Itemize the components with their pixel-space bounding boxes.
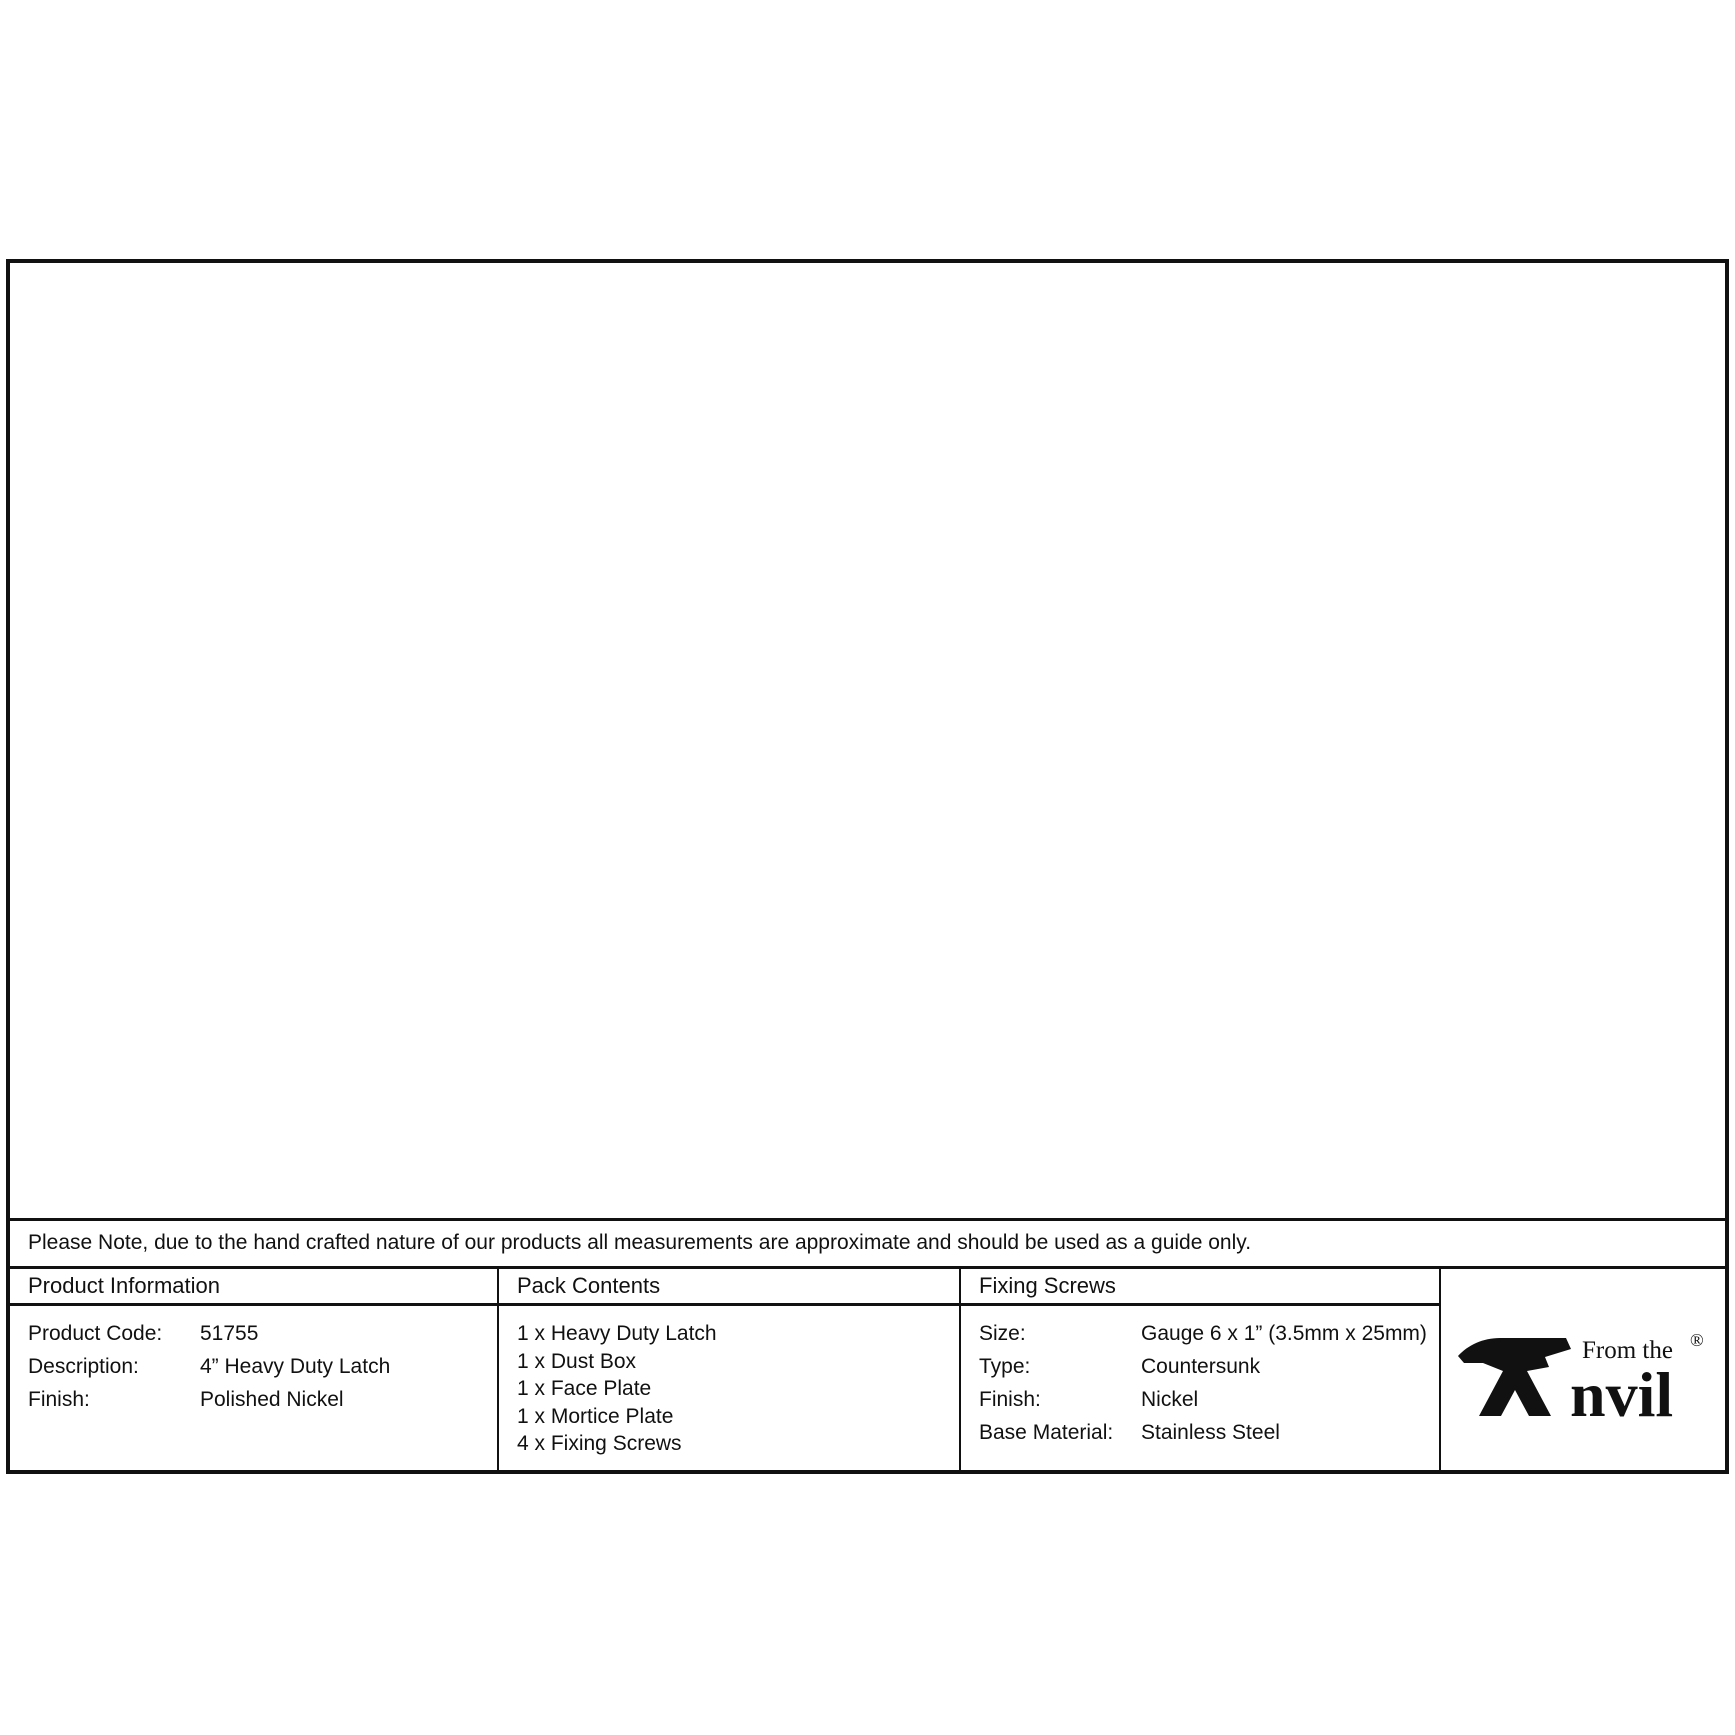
pack-item: 1 x Heavy Duty Latch bbox=[517, 1320, 959, 1348]
pack-item: 1 x Face Plate bbox=[517, 1375, 959, 1403]
field-label: Finish: bbox=[979, 1386, 1141, 1413]
field-value: Polished Nickel bbox=[200, 1386, 344, 1413]
pack-contents-header: Pack Contents bbox=[499, 1269, 959, 1306]
field-value: Nickel bbox=[1141, 1386, 1198, 1413]
fixing-screws-header: Fixing Screws bbox=[961, 1269, 1439, 1306]
anvil-icon bbox=[1458, 1338, 1571, 1416]
spec-sheet-page: { "note": "Please Note, due to the hand … bbox=[0, 0, 1735, 1735]
product-information-column: Product Information Product Code: 51755 … bbox=[10, 1269, 497, 1470]
screw-finish-row: Finish: Nickel bbox=[979, 1386, 1439, 1413]
field-value: Countersunk bbox=[1141, 1353, 1260, 1380]
pack-contents-column: Pack Contents 1 x Heavy Duty Latch 1 x D… bbox=[497, 1269, 959, 1470]
pack-item: 1 x Dust Box bbox=[517, 1348, 959, 1376]
pack-item: 4 x Fixing Screws bbox=[517, 1430, 959, 1458]
pack-item: 1 x Mortice Plate bbox=[517, 1403, 959, 1431]
field-value: 4” Heavy Duty Latch bbox=[200, 1353, 390, 1380]
field-label: Finish: bbox=[28, 1386, 200, 1413]
field-label: Size: bbox=[979, 1320, 1141, 1347]
info-grid: Product Information Product Code: 51755 … bbox=[10, 1266, 1725, 1470]
registered-trademark-icon: ® bbox=[1690, 1330, 1704, 1350]
field-label: Base Material: bbox=[979, 1419, 1141, 1446]
finish-row: Finish: Polished Nickel bbox=[28, 1386, 497, 1413]
measurement-note: Please Note, due to the hand crafted nat… bbox=[10, 1218, 1725, 1266]
sheet-border: Please Note, due to the hand crafted nat… bbox=[6, 259, 1729, 1474]
field-value: Stainless Steel bbox=[1141, 1419, 1280, 1446]
size-row: Size: Gauge 6 x 1” (3.5mm x 25mm) bbox=[979, 1320, 1439, 1347]
spec-table: Please Note, due to the hand crafted nat… bbox=[10, 1218, 1725, 1470]
field-label: Description: bbox=[28, 1353, 200, 1380]
fixing-screws-column: Fixing Screws Size: Gauge 6 x 1” (3.5mm … bbox=[959, 1269, 1439, 1470]
logo-anvil-text: nvil bbox=[1570, 1359, 1673, 1424]
base-material-row: Base Material: Stainless Steel bbox=[979, 1419, 1439, 1446]
brand-logo-cell: From the nvil ® bbox=[1439, 1269, 1725, 1470]
field-label: Type: bbox=[979, 1353, 1141, 1380]
product-information-header: Product Information bbox=[10, 1269, 497, 1306]
field-value: 51755 bbox=[200, 1320, 258, 1347]
field-value: Gauge 6 x 1” (3.5mm x 25mm) bbox=[1141, 1320, 1427, 1347]
product-code-row: Product Code: 51755 bbox=[28, 1320, 497, 1347]
field-label: Product Code: bbox=[28, 1320, 200, 1347]
from-the-anvil-logo: From the nvil ® bbox=[1452, 1316, 1714, 1424]
description-row: Description: 4” Heavy Duty Latch bbox=[28, 1353, 497, 1380]
type-row: Type: Countersunk bbox=[979, 1353, 1439, 1380]
